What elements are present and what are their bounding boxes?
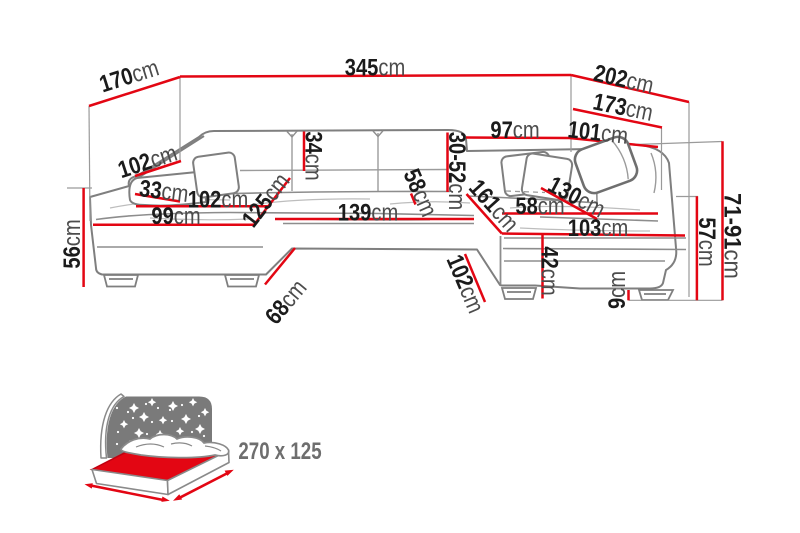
svg-text:102cm: 102cm [441,251,490,317]
svg-text:99cm: 99cm [151,202,200,229]
svg-text:34cm: 34cm [300,131,327,180]
svg-text:9cm: 9cm [603,271,630,309]
svg-text:101cm: 101cm [566,116,629,150]
svg-text:139cm: 139cm [338,199,399,226]
svg-text:170cm: 170cm [96,54,162,98]
svg-text:103cm: 103cm [568,214,629,241]
svg-text:42cm: 42cm [536,246,563,295]
svg-text:270 x 125: 270 x 125 [238,438,321,465]
svg-text:30-52cm: 30-52cm [444,132,471,210]
svg-text:56cm: 56cm [58,219,85,268]
svg-text:97cm: 97cm [490,116,539,143]
svg-text:71-91cm: 71-91cm [719,193,746,279]
svg-text:57cm: 57cm [694,217,721,266]
svg-text:345cm: 345cm [345,54,406,81]
